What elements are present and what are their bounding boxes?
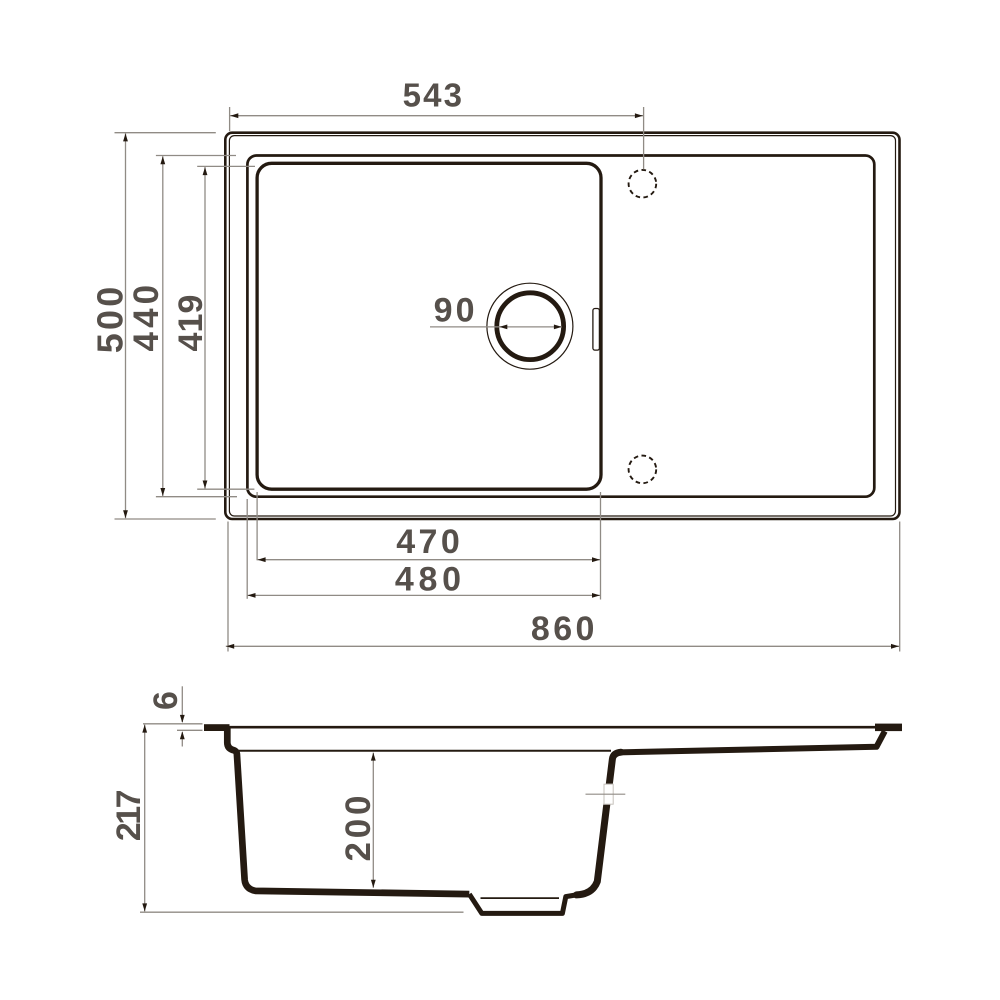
svg-text:480: 480 (395, 561, 466, 599)
svg-text:6: 6 (147, 691, 185, 710)
svg-text:543: 543 (403, 77, 465, 114)
svg-text:860: 860 (531, 610, 598, 648)
svg-text:217: 217 (110, 790, 148, 841)
svg-text:200: 200 (339, 792, 378, 862)
svg-text:90: 90 (434, 291, 478, 329)
svg-text:440: 440 (127, 281, 166, 352)
svg-text:470: 470 (396, 523, 463, 561)
svg-text:500: 500 (90, 284, 131, 354)
svg-text:419: 419 (172, 294, 210, 351)
